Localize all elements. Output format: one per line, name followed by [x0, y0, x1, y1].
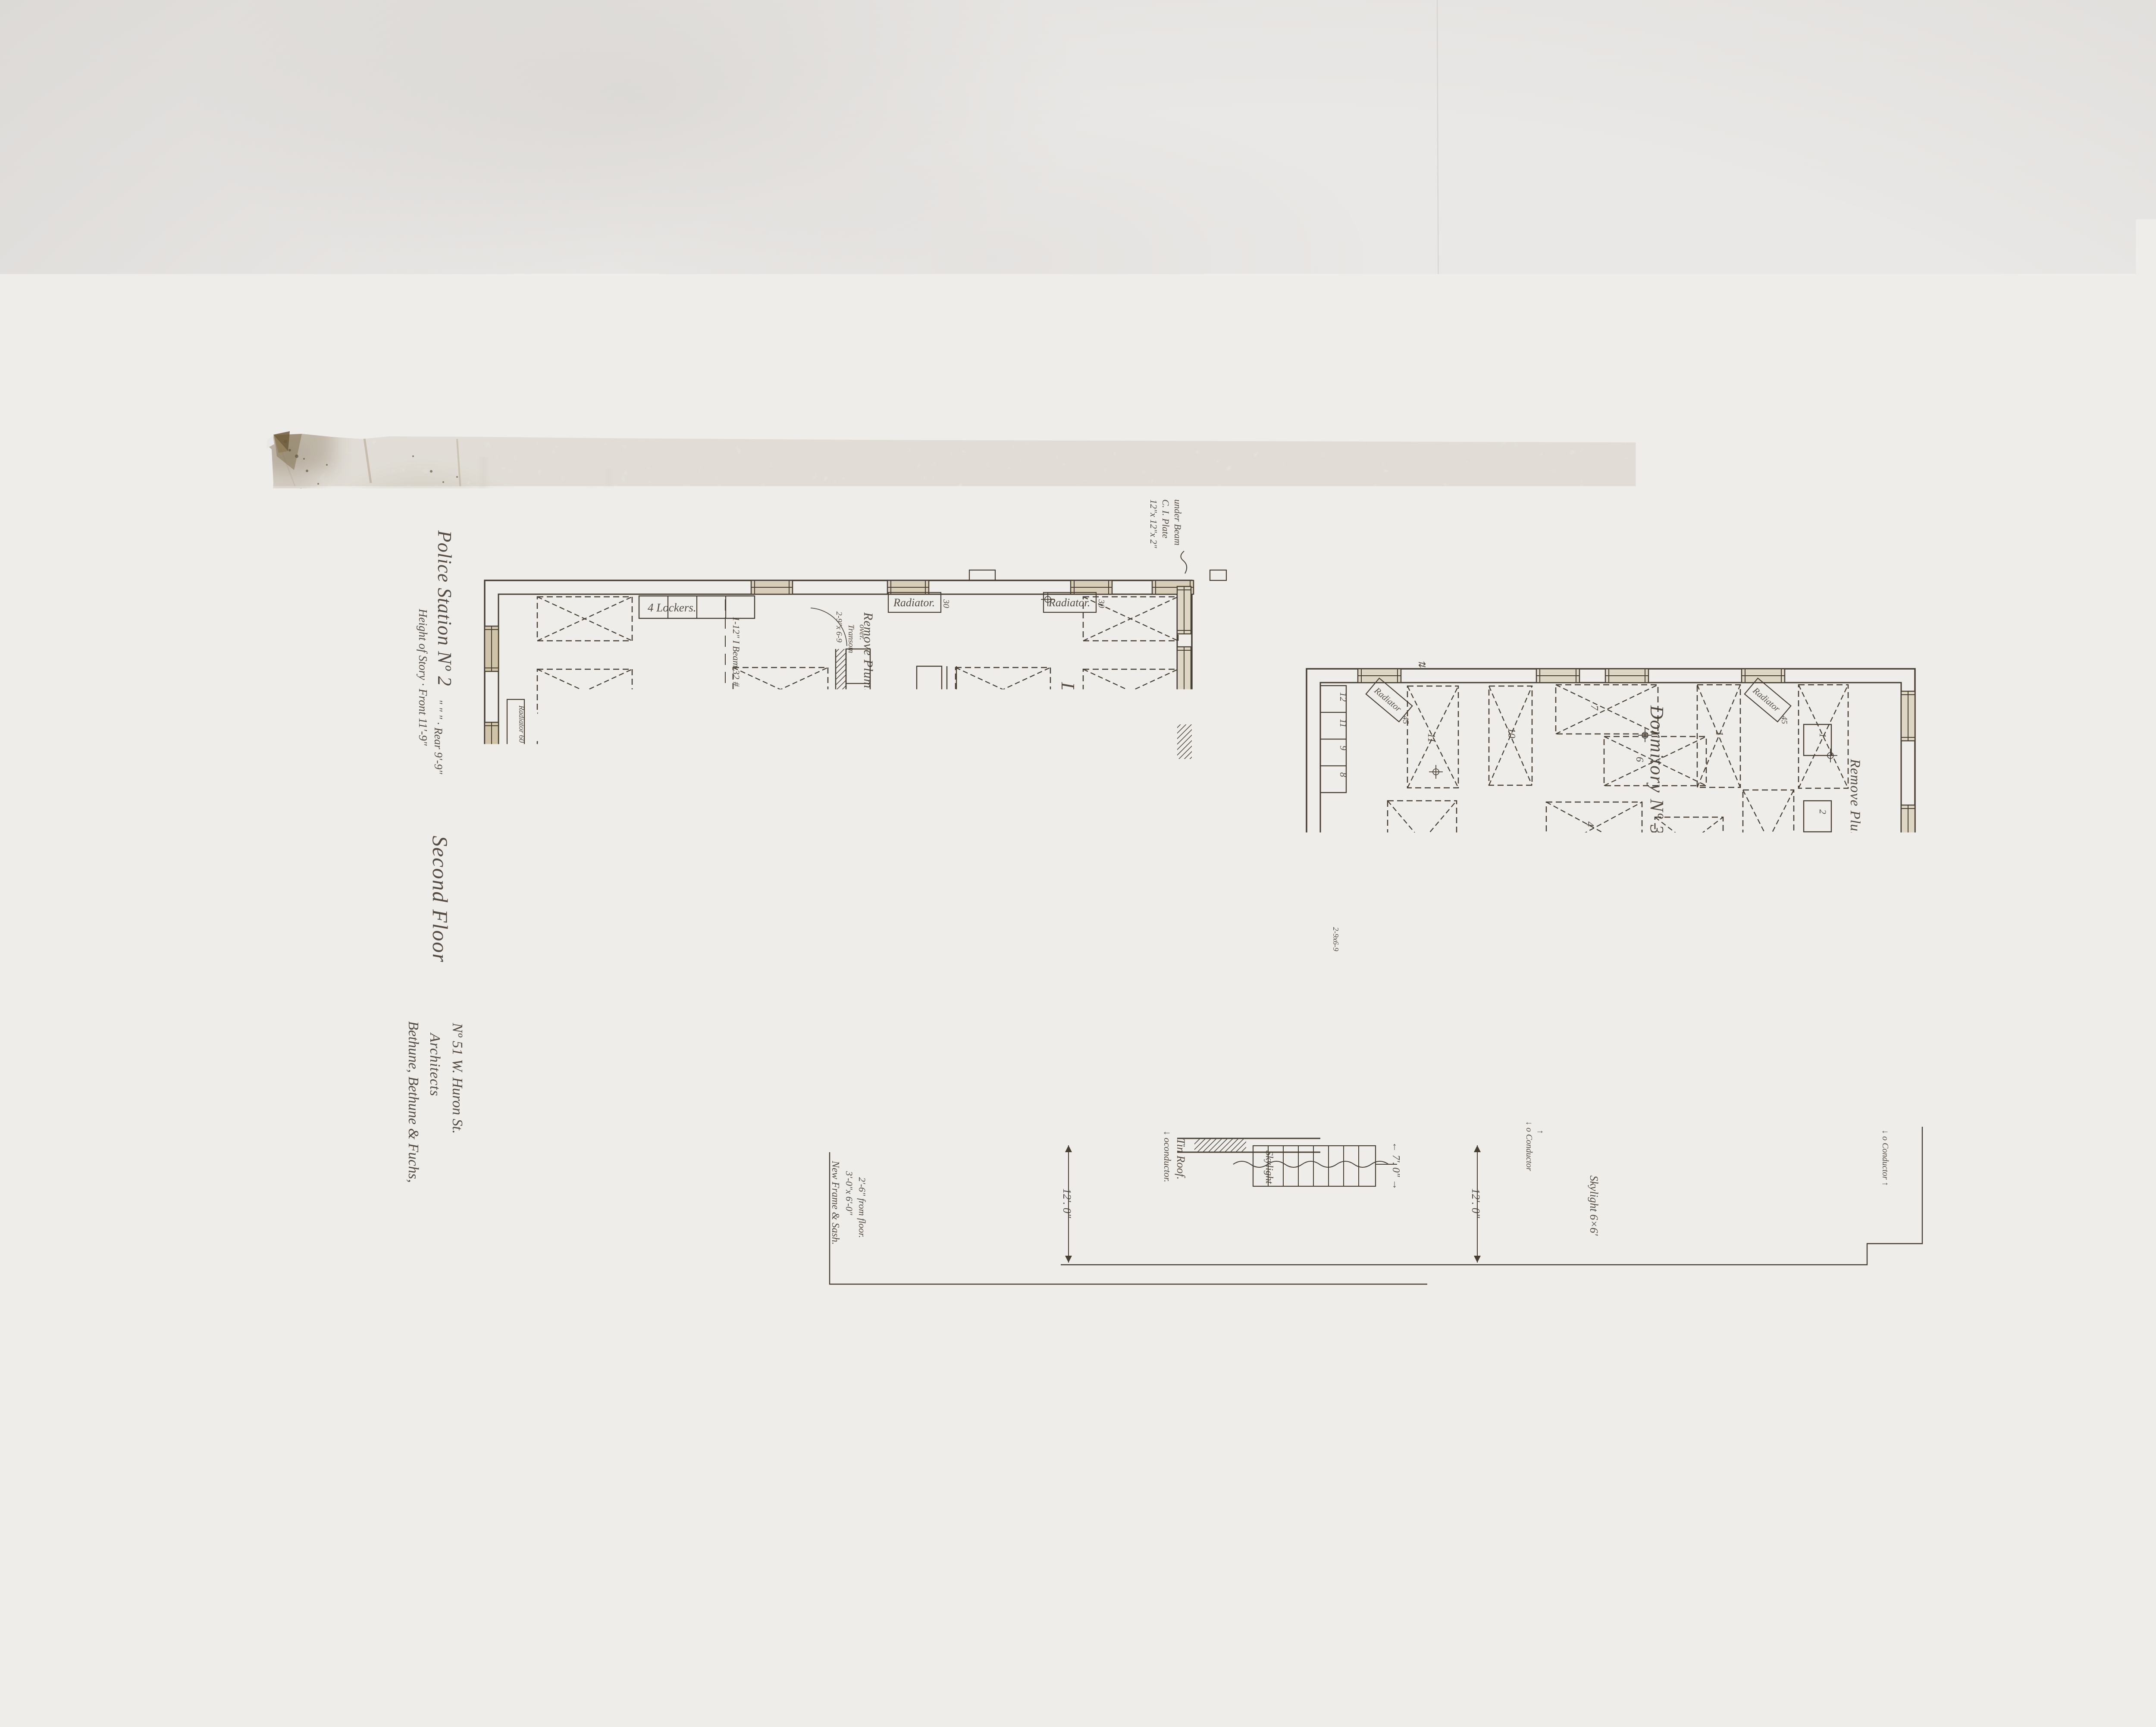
svg-text:8: 8: [1338, 772, 1349, 777]
svg-text:Wainscoted 6′6″high-Georgia Pi: Wainscoted 6′6″high-Georgia Pine wainsco…: [1594, 962, 1602, 1092]
svg-text:Police Station Nº 2: Police Station Nº 2: [434, 530, 455, 686]
svg-text:Radiator 60: Radiator 60: [517, 705, 526, 743]
svg-text:3′-0″x 6′-0″: 3′-0″x 6′-0″: [844, 1171, 855, 1216]
svg-text:→ Up.: → Up.: [1222, 859, 1233, 885]
svg-text:Dormitory Nº 3 .: Dormitory Nº 3 .: [1646, 705, 1667, 846]
svg-text:1-12″ I Beam 32 #: 1-12″ I Beam 32 #: [731, 617, 742, 687]
svg-text:12″x 12″x 2″: 12″x 12″x 2″: [1148, 499, 1159, 549]
svg-text:2′-6″ from floor.: 2′-6″ from floor.: [857, 1177, 868, 1238]
svg-text:Urinal: Urinal: [1598, 1078, 1608, 1100]
svg-text:5: 5: [1485, 876, 1496, 881]
svg-text:Radiator.: Radiator.: [893, 596, 935, 609]
svg-text:Transom: Transom: [846, 624, 856, 653]
svg-text:30: 30: [941, 599, 951, 608]
svg-text:45: 45: [1401, 716, 1410, 724]
svg-text:30: 30: [1069, 1115, 1078, 1123]
svg-text:6: 6: [1462, 876, 1473, 881]
svg-text:N e w: N e w: [1289, 859, 1300, 884]
svg-text:9: 9: [1520, 832, 1531, 837]
svg-text:6″x3½x⅜: 6″x3½x⅜: [1216, 931, 1227, 966]
svg-text:↓ o Conductor: ↓ o Conductor: [1524, 1121, 1534, 1171]
svg-text:↓ oconductor.: ↓ oconductor.: [1162, 1131, 1173, 1182]
svg-text:“A”: “A”: [710, 733, 721, 749]
svg-text:Wainscoted 5′6″high Georgia Pi: Wainscoted 5′6″high Georgia Pine.: [1232, 729, 1243, 869]
svg-text:over.: over.: [950, 884, 959, 899]
svg-text:Specials’ Room .: Specials’ Room .: [1376, 987, 1394, 1103]
svg-text:⇅ Transom: ⇅ Transom: [1717, 903, 1727, 943]
svg-text:Bethune, Bethune & Fuchs,: Bethune, Bethune & Fuchs,: [405, 1021, 421, 1183]
svg-text:Steps removed.: Steps removed.: [1222, 757, 1231, 806]
svg-text:Radiator.: Radiator.: [1048, 596, 1090, 609]
svg-text:10: 10: [1506, 728, 1517, 738]
svg-text:S t a i r c a s e: S t a i r c a s e: [1289, 901, 1300, 961]
svg-text:12′. 0″: 12′. 0″: [1470, 1188, 1482, 1219]
svg-text:9: 9: [1338, 746, 1349, 750]
svg-text:Transom: Transom: [938, 884, 947, 911]
svg-text:12′. 0″: 12′. 0″: [1061, 1188, 1073, 1219]
svg-text:Lavatory: Lavatory: [1609, 977, 1625, 1034]
svg-text:Bath Tub.: Bath Tub.: [1697, 969, 1706, 1003]
svg-text:Height of Story · Front 11′-9: Height of Story · Front 11′-9″: [417, 608, 429, 746]
svg-text:New Frame & Sash.: New Frame & Sash.: [830, 1160, 841, 1245]
svg-text:Radiator 30: Radiator 30: [1577, 1084, 1586, 1120]
svg-text:Hall .: Hall .: [996, 929, 1013, 965]
svg-text:Glass panel: Glass panel: [1705, 903, 1715, 944]
svg-text:Remove Plumbing.: Remove Plumbing.: [1847, 759, 1863, 873]
svg-text:Radiator.: Radiator.: [1022, 1116, 1061, 1127]
svg-text:6: 6: [1634, 757, 1645, 762]
svg-text:3: 3: [1679, 836, 1690, 842]
svg-text:Skylight: Skylight: [1247, 1038, 1261, 1078]
svg-text:Nº 51 W. Huron St.: Nº 51 W. Huron St.: [449, 1022, 465, 1134]
svg-text:Thimble: Thimble: [1727, 1078, 1736, 1102]
svg-text:12: 12: [1338, 692, 1349, 702]
svg-text:Bath Room.: Bath Room.: [1641, 1065, 1653, 1116]
svg-text:Room.: Room.: [876, 821, 895, 870]
svg-text:7: 7: [1589, 705, 1600, 711]
svg-text:6x6x¾″ C.I.Column.: 6x6x¾″ C.I.Column.: [742, 763, 752, 838]
svg-text:⇅: ⇅: [1416, 660, 1427, 668]
svg-text:Skylight 6×6′: Skylight 6×6′: [1588, 1175, 1600, 1236]
svg-text:W.C.: W.C.: [1553, 1021, 1563, 1038]
svg-text:W.C.: W.C.: [1553, 972, 1563, 989]
svg-text:Bath Tub.: Bath Tub.: [1702, 1053, 1711, 1087]
svg-text:35: 35: [1738, 1057, 1748, 1066]
svg-text:Sergeant’s Room.: Sergeant’s Room.: [832, 992, 848, 1100]
svg-text:1: 1: [1818, 733, 1828, 738]
svg-text:↓ o Conductor ↑: ↓ o Conductor ↑: [1880, 1130, 1890, 1186]
svg-text:Radiator.: Radiator.: [1743, 1078, 1753, 1110]
svg-text:Kitchen: Kitchen: [1836, 965, 1855, 1025]
svg-text:7: 7: [1438, 876, 1449, 881]
svg-text:Transom over-: Transom over-: [1438, 908, 1447, 956]
svg-text:Remove Plumbing.: Remove Plumbing.: [861, 612, 875, 717]
svg-text:Architects: Architects: [427, 1032, 443, 1097]
svg-text:C. I. Plate: C. I. Plate: [1160, 499, 1171, 539]
svg-text:11: 11: [1426, 733, 1437, 743]
svg-text:2-10x7-0: 2-10x7-0: [1693, 888, 1702, 916]
svg-text:″ ″ ″ · Rear 9′-9″: ″ ″ ″ · Rear 9′-9″: [432, 699, 445, 774]
svg-text:4 Lockers.: 4 Lockers.: [648, 601, 696, 614]
svg-text:12″x12″x 2″ C.I. plate under b: 12″x12″x 2″ C.I. plate under beam.: [757, 996, 766, 1118]
svg-text:Skylight: Skylight: [1263, 1150, 1275, 1185]
svg-text:Hall -: Hall -: [1469, 900, 1485, 935]
svg-text:under Beam: under Beam: [1172, 499, 1183, 545]
svg-text:30: 30: [1097, 599, 1106, 608]
svg-text:Transom over: Transom over: [1364, 909, 1373, 953]
svg-text:Dormitory Nº 2 .: Dormitory Nº 2 .: [1057, 682, 1078, 816]
svg-text:1-12″ I. Beam 32 #: 1-12″ I. Beam 32 #: [731, 901, 742, 974]
svg-text:12: 12: [1416, 832, 1427, 843]
svg-text:Dormitory Nº 1.: Dormitory Nº 1.: [662, 850, 683, 979]
svg-text:4: 4: [1584, 821, 1595, 827]
svg-text:Tin Roof.: Tin Roof.: [1175, 1138, 1187, 1179]
svg-text:Hall .: Hall .: [1242, 751, 1260, 789]
svg-text:2: 2: [1762, 837, 1773, 842]
svg-text:11: 11: [1338, 719, 1349, 727]
svg-text:← 7′. 0″ →: ← 7′. 0″ →: [1390, 1142, 1401, 1190]
svg-text:45: 45: [1780, 716, 1789, 724]
svg-text:2-9″x 6-9: 2-9″x 6-9: [834, 611, 843, 643]
svg-text:1: 1: [1714, 731, 1725, 736]
svg-text:2-9x6-9: 2-9x6-9: [1332, 927, 1340, 951]
svg-text:Radiator 60: Radiator 60: [517, 1009, 526, 1047]
svg-text:→→→ Down.: →→→ Down.: [1264, 860, 1273, 911]
svg-text:Sergeants’ Room.: Sergeants’ Room.: [1144, 984, 1159, 1093]
svg-text:↑: ↑: [1536, 1130, 1545, 1134]
svg-text:Locker: Locker: [876, 735, 895, 788]
svg-text:Bath Room.: Bath Room.: [1636, 962, 1648, 1012]
svg-text:Wash Basins.: Wash Basins.: [1553, 1056, 1564, 1106]
svg-text:2: 2: [1818, 809, 1828, 814]
svg-text:Second Floor: Second Floor: [428, 836, 452, 963]
svg-text:6 Lockers.: 6 Lockers.: [704, 1028, 718, 1079]
